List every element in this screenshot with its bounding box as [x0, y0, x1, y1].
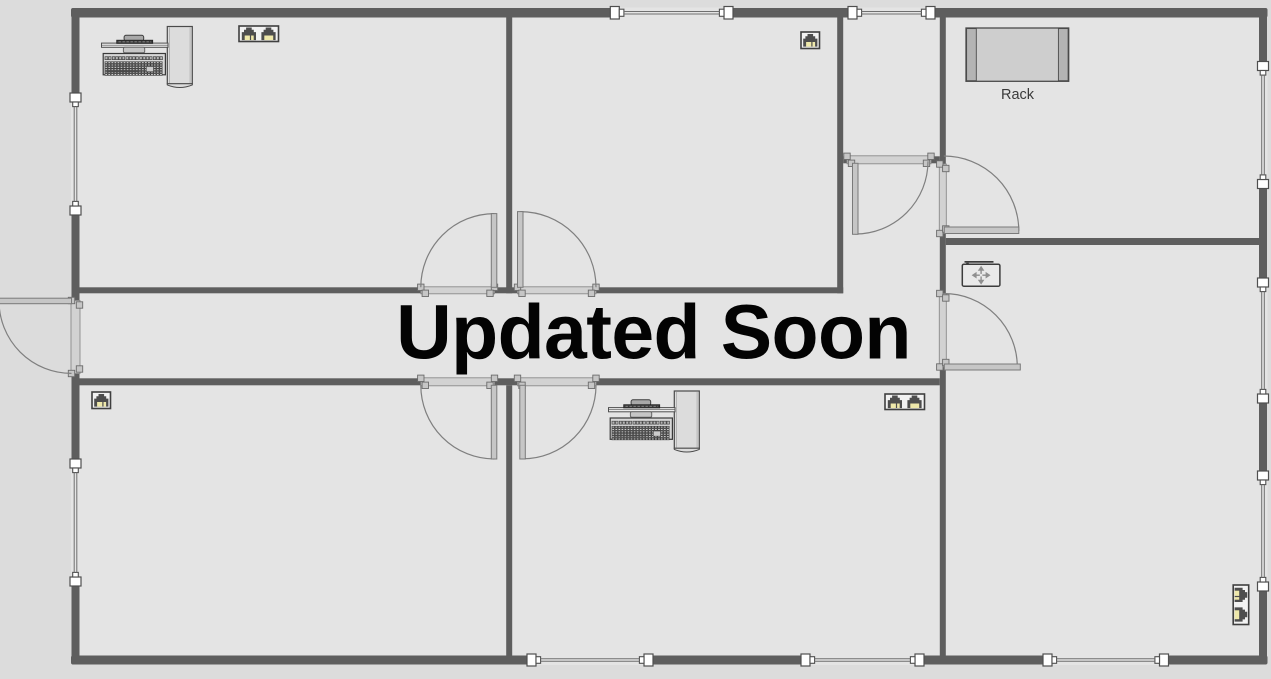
svg-text:Rack: Rack: [1001, 87, 1035, 103]
svg-text:Updated Soon: Updated Soon: [396, 289, 911, 375]
